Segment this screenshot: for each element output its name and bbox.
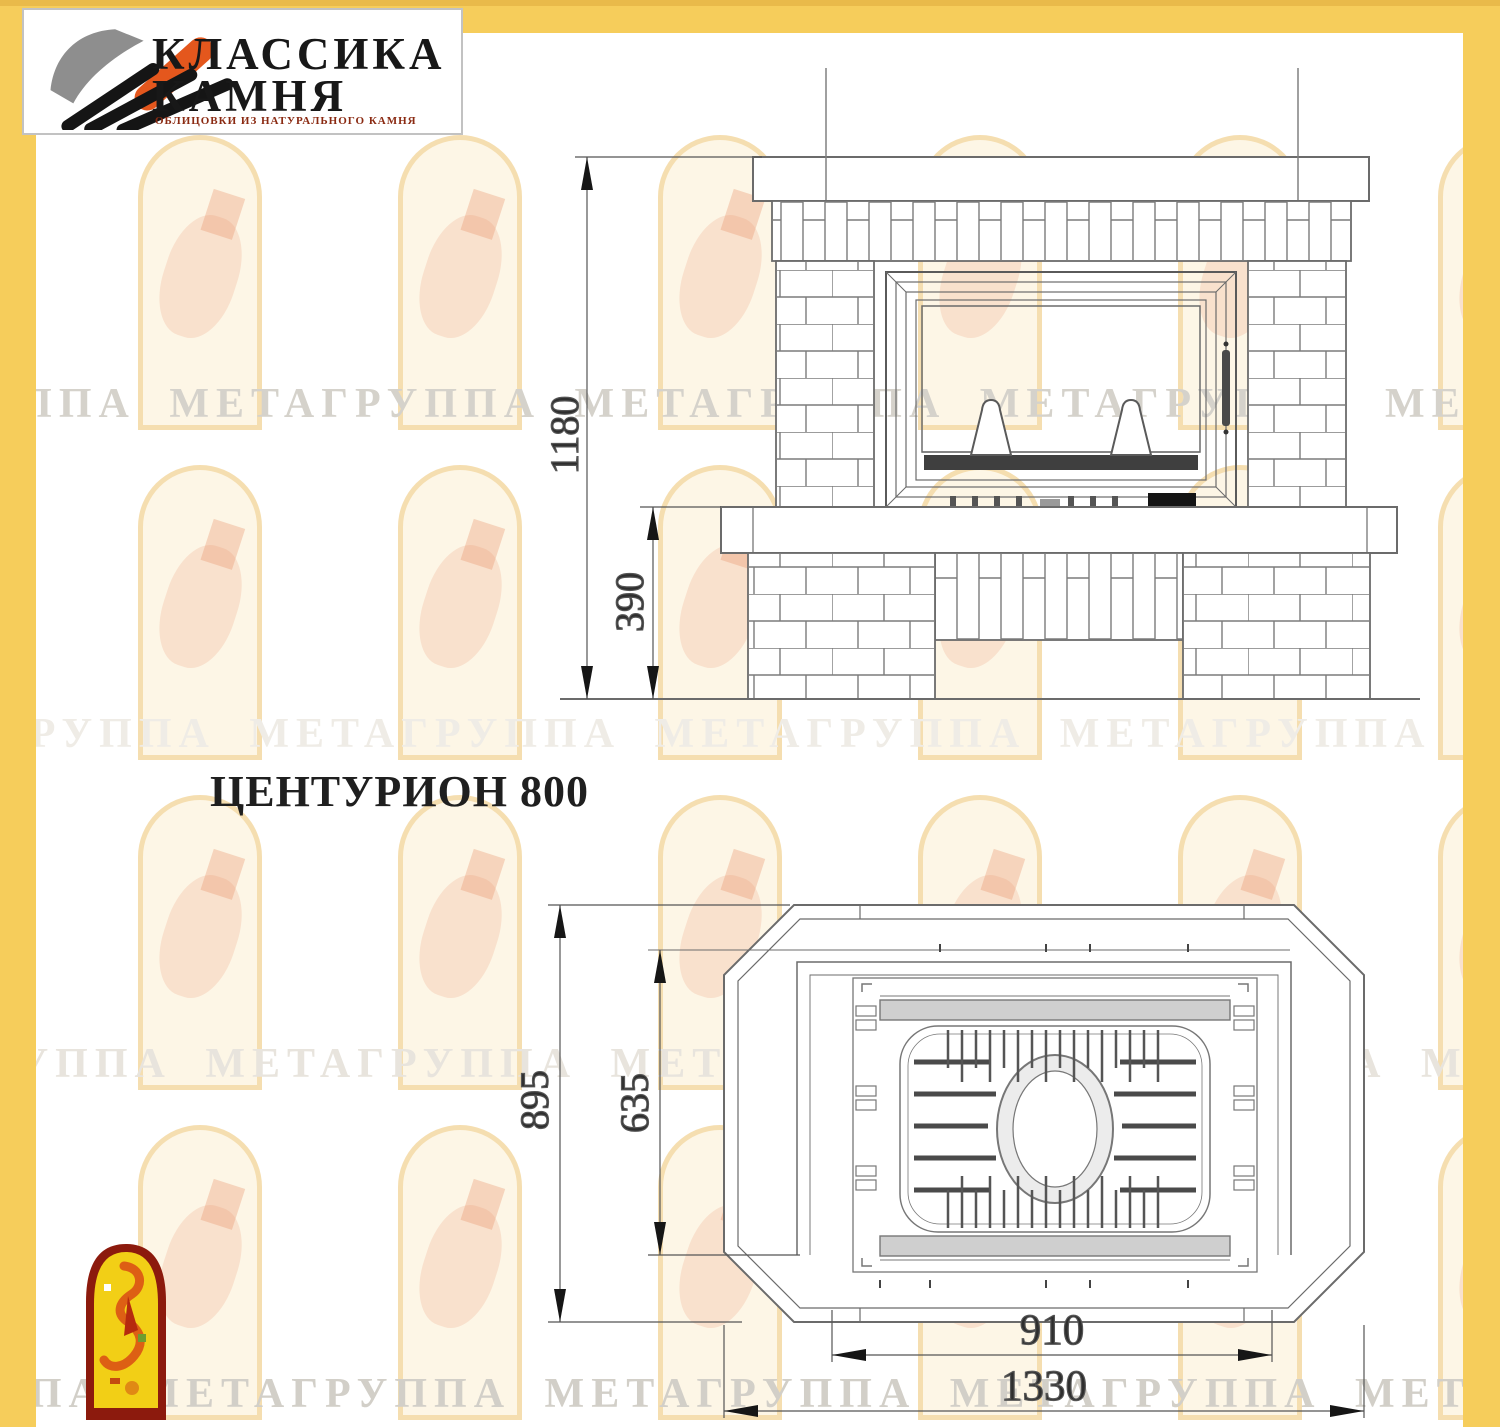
ash-drawer (1148, 493, 1196, 507)
technical-drawing: 1180 390 (0, 0, 1500, 1427)
dim-width-firebox-label: 910 (1020, 1307, 1085, 1354)
insert-back-rail (880, 1000, 1230, 1020)
grate-bar (924, 455, 1198, 470)
plan-view (648, 905, 1364, 1322)
mascot-emblem-icon (80, 1238, 172, 1420)
right-brick-column (1248, 261, 1346, 507)
insert-front-rail (880, 1236, 1230, 1256)
dim-width-total-label: 1330 (1001, 1363, 1087, 1410)
page: ГРУППА МЕТАГРУППА МЕТАГРУППА МЕТАГРУППА … (0, 0, 1500, 1427)
top-brick-band (772, 201, 1351, 261)
dim-depth-total-label: 895 (512, 1070, 557, 1130)
door-glass (922, 306, 1200, 452)
dim-base-height: 390 (607, 507, 721, 699)
hearth-shelf (721, 507, 1397, 553)
andiron-right (1111, 400, 1151, 455)
vent-slots (950, 496, 1118, 507)
base-brick-band (935, 553, 1183, 640)
right-pedestal (1183, 553, 1370, 699)
door-handle (1222, 350, 1230, 426)
grate-ring-inner (1013, 1071, 1097, 1187)
mantel-shelf (753, 157, 1369, 201)
left-pedestal (748, 553, 935, 699)
dim-depth-firebox-label: 635 (612, 1073, 657, 1133)
company-logo: КЛАССИКА КАМНЯ ОБЛИЦОВКИ ИЗ НАТУРАЛЬНОГО… (22, 8, 463, 135)
logo-subtitle: ОБЛИЦОВКИ ИЗ НАТУРАЛЬНОГО КАМНЯ (155, 115, 417, 127)
front-view-dimensions: 1180 390 (542, 157, 762, 699)
product-title: ЦЕНТУРИОН 800 (210, 766, 589, 817)
dim-base-height-label: 390 (607, 572, 652, 632)
dim-total-height-label: 1180 (542, 396, 587, 475)
firebox-door (886, 272, 1236, 507)
door-glass-frame (916, 300, 1206, 480)
logo-title-line2: КАМНЯ (152, 74, 347, 119)
left-brick-column (776, 261, 874, 507)
andiron-left (971, 400, 1011, 455)
dim-total-height: 1180 (542, 157, 762, 699)
front-view (560, 68, 1420, 699)
